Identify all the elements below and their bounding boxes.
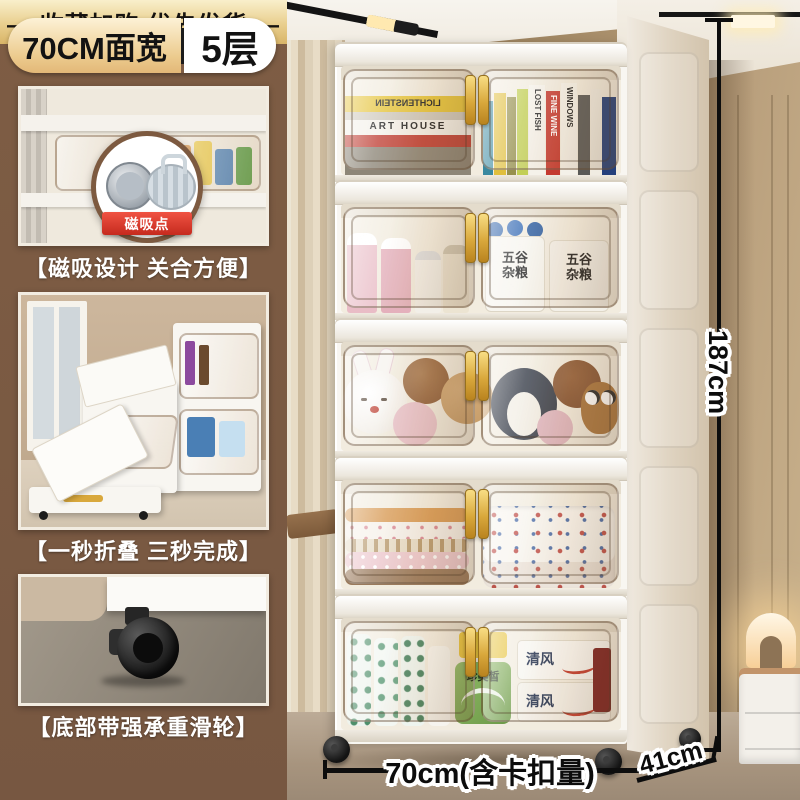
cabinet-door-left[interactable] — [343, 69, 475, 170]
wheel-hub — [133, 633, 163, 663]
ceiling-light — [731, 15, 775, 28]
height-dimension-label: 187cm — [702, 330, 733, 414]
window-pane — [33, 307, 54, 439]
shelf-band — [21, 115, 266, 131]
door-handle[interactable] — [478, 351, 489, 401]
magnet-point-badge: 磁吸点 — [102, 212, 192, 235]
magnet-point-label: 磁吸点 — [125, 214, 170, 234]
feature-caption-wheel: 【底部带强承重滑轮】 — [0, 710, 287, 742]
drawer-line — [745, 712, 800, 714]
storage-cabinet: LICHTENSTEIN ART HOUSE LOST F — [330, 14, 710, 770]
door-handle[interactable] — [465, 75, 476, 125]
door-handle[interactable] — [478, 75, 489, 125]
drawer-line — [745, 748, 800, 750]
nightstand — [739, 668, 800, 764]
tier-base — [335, 313, 627, 320]
cabinet-foot — [335, 730, 627, 742]
cabinet-door-left[interactable] — [343, 345, 475, 446]
left-feature-column: 70CM面宽 5层 磁吸点 — [0, 0, 287, 800]
tier-drinks: 五谷杂粮 五谷杂粮 — [335, 182, 627, 320]
tier-plush — [335, 320, 627, 458]
door-handle[interactable] — [478, 213, 489, 263]
lamp-notch — [760, 636, 782, 668]
tier-books: LICHTENSTEIN ART HOUSE LOST F — [335, 44, 627, 182]
wheel — [39, 511, 48, 520]
width-dimension-label: 70cm(含卡扣量) — [355, 750, 625, 792]
tier-lid — [335, 320, 627, 343]
side-emboss — [639, 328, 699, 448]
tier-lid — [335, 458, 627, 481]
folded-cabinet-upright — [173, 323, 261, 491]
cabinet-door-left[interactable] — [343, 621, 475, 722]
side-emboss — [639, 190, 699, 310]
feature-caption-folding: 【一秒折叠 三秒完成】 — [0, 534, 287, 566]
cabinet-door-right[interactable] — [481, 345, 619, 446]
stored-item — [187, 417, 215, 457]
tier-base — [335, 175, 627, 182]
product-detail-image: 70CM面宽 5层 磁吸点 — [0, 0, 800, 800]
tier-lid — [335, 182, 627, 205]
tier-blankets — [335, 458, 627, 596]
side-emboss — [639, 466, 699, 586]
tier-base — [335, 451, 627, 458]
magnetic-inset-circle: 磁吸点 — [91, 131, 203, 243]
cabinet-door-left[interactable] — [343, 483, 475, 584]
cabinet-door-right[interactable] — [481, 483, 619, 584]
badge-tier-label: 5层 — [201, 19, 259, 73]
tier-door-area — [341, 342, 621, 451]
arch-lamp — [746, 613, 796, 668]
badge-width-segment: 70CM面宽 — [8, 18, 181, 73]
tier-door-area: 五谷杂粮 五谷杂粮 — [341, 204, 621, 313]
stored-item — [219, 421, 245, 457]
feature-image-folding — [18, 292, 269, 530]
feature-image-wheel — [18, 574, 269, 706]
door-handle[interactable] — [465, 489, 476, 539]
side-emboss — [639, 52, 699, 172]
tier-base — [335, 589, 627, 596]
stored-item — [185, 341, 195, 385]
door-handle[interactable] — [465, 213, 476, 263]
wheel — [139, 511, 148, 520]
cabinet-door-right[interactable] — [481, 69, 619, 170]
feature-image-magnetic: 磁吸点 — [18, 86, 269, 246]
door-handle[interactable] — [478, 489, 489, 539]
cabinet-bottom-edge — [107, 577, 266, 611]
cabinet-door-left[interactable] — [343, 207, 475, 308]
height-dimension-tick-top — [705, 18, 733, 22]
side-emboss — [639, 604, 699, 724]
cabinet-door-right[interactable] — [481, 621, 619, 722]
door-handle[interactable] — [465, 627, 476, 677]
caster-wheel — [323, 736, 350, 763]
badge-width-label: 70CM面宽 — [22, 23, 167, 68]
tier-door-area: LICHTENSTEIN ART HOUSE LOST F — [341, 66, 621, 175]
door-handle[interactable] — [465, 351, 476, 401]
tier-door-area — [341, 480, 621, 589]
curtain-strip — [21, 89, 47, 246]
door-handle[interactable] — [478, 627, 489, 677]
tier-lid — [335, 596, 627, 619]
width-dimension-tick — [323, 760, 327, 779]
folded-flat-cabinet — [29, 487, 161, 513]
tier-door-area: 珍美皙 清风 清风 — [341, 618, 621, 730]
magnet-cap — [146, 164, 196, 210]
sofa-corner — [21, 577, 107, 621]
tier-lid — [335, 44, 627, 67]
cabinet-front: LICHTENSTEIN ART HOUSE LOST F — [335, 44, 627, 744]
cabinet-door-right[interactable] — [481, 207, 619, 308]
stored-item — [199, 345, 209, 385]
feature-caption-magnetic: 【磁吸设计 关合方便】 — [0, 251, 287, 283]
size-badge: 70CM面宽 5层 — [8, 18, 276, 73]
main-product-photo: LICHTENSTEIN ART HOUSE LOST F — [287, 0, 800, 800]
cabinet-side-panel — [627, 16, 709, 764]
tier-tissues: 珍美皙 清风 清风 — [335, 596, 627, 744]
badge-tier-segment: 5层 — [184, 18, 276, 73]
